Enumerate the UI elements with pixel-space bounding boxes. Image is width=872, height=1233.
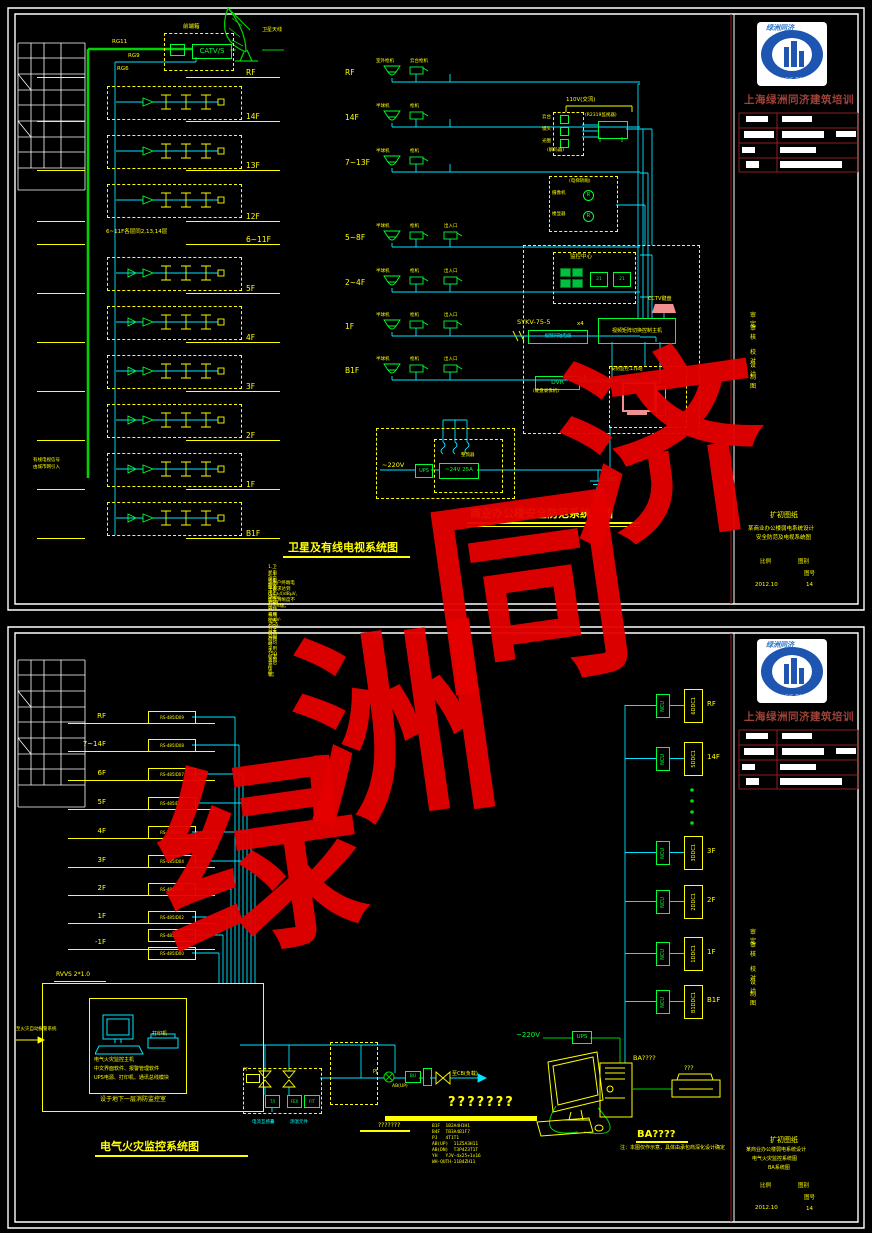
drawing-name2: BA系统图 bbox=[768, 1166, 790, 1171]
bu-box: BU bbox=[405, 1071, 421, 1083]
x4-label: x4 bbox=[577, 322, 584, 328]
lift-item1: 摄像机 bbox=[552, 192, 566, 197]
fex-box: FEX bbox=[287, 1095, 302, 1108]
control-center-label: 监控中心 bbox=[570, 255, 592, 261]
cad-canvas: CATV/S 视频矩阵切换控制主机 视频同轴电缆 DVR UPS ~24V 25… bbox=[0, 0, 872, 1233]
redaction-bar bbox=[782, 131, 824, 138]
project-line1: 某商业办公楼弱电系统设计 bbox=[748, 527, 814, 533]
redaction-bar bbox=[742, 147, 755, 153]
company-name: 上海绿洲同济建筑培训 bbox=[744, 95, 854, 106]
fas-link-label: 至火灾自动报警系统 bbox=[16, 1028, 57, 1033]
redaction-bar bbox=[744, 131, 774, 138]
ba-note: 注：本图仅作示意，具体由承包商深化设计确定 bbox=[620, 1146, 725, 1151]
meb-ground-label: MEB bbox=[606, 478, 617, 483]
catv-mid-note: 6~11F各层同2,13,14层 bbox=[106, 230, 167, 236]
decoder-port-icon bbox=[560, 139, 569, 148]
matrix-box: 视频矩阵切换控制主机 bbox=[598, 318, 676, 344]
catv-entry-note1: 有线电视信号 bbox=[33, 459, 60, 464]
ups-box-s1: UPS bbox=[415, 464, 433, 478]
ct-label: 电流互感器 bbox=[252, 1121, 275, 1126]
redaction-bar bbox=[782, 116, 812, 122]
bu-label: BU bbox=[410, 1075, 416, 1080]
coax-cable-label: SYKV-75-5 bbox=[517, 319, 551, 326]
pt-box bbox=[246, 1074, 260, 1083]
cctv-title-underline2 bbox=[467, 526, 640, 527]
monitor-21in-icon: 21 bbox=[590, 272, 608, 287]
redaction-bar bbox=[836, 131, 856, 137]
fire-diagram-title: 电气火灾监控系统图 bbox=[100, 1141, 199, 1152]
redaction-bar bbox=[780, 764, 816, 770]
cable-label-rg6: RG6 bbox=[117, 67, 129, 73]
redaction-bar bbox=[744, 748, 774, 755]
small-monitor-icon bbox=[572, 279, 583, 288]
ws-monitor-icon bbox=[622, 382, 656, 412]
fire-host-line2: 中文界面软件、报警管理软件 bbox=[94, 1067, 159, 1072]
monitor-110v-box bbox=[598, 121, 628, 139]
lift-item2: 楼显器 bbox=[552, 213, 566, 218]
redaction-bar bbox=[746, 161, 759, 168]
dvr-label: DVR bbox=[551, 380, 564, 386]
relay-box bbox=[423, 1068, 432, 1086]
fit-box: FIT bbox=[304, 1095, 320, 1108]
rvvs-cable-label: RVVS 2*1.0 bbox=[56, 972, 90, 978]
lift-cabin-label: (电梯轿厢) bbox=[569, 180, 591, 185]
redaction-bar bbox=[780, 147, 816, 153]
antenna-label: 卫星天线 bbox=[262, 28, 282, 33]
dc24-label: ~24V 25A bbox=[445, 468, 473, 474]
cctv-diagram-title: 商业办公楼安全防范系统框图 bbox=[470, 508, 613, 519]
type-label: 图别 bbox=[798, 1184, 809, 1190]
camera-r-icon: R bbox=[583, 211, 594, 222]
redaction-bar bbox=[782, 733, 812, 739]
fit-label: FIT bbox=[309, 1100, 315, 1104]
ba-title-underline bbox=[636, 1141, 688, 1143]
drawing-name: 安全防范及电视系统图 bbox=[756, 536, 811, 542]
fex-label: FEX bbox=[291, 1100, 299, 1104]
drawing-name: 电气火灾监控系统图 bbox=[752, 1157, 797, 1162]
decoder-port-icon bbox=[560, 127, 569, 136]
scale-label: 比例 bbox=[760, 560, 771, 566]
dc24-box: ~24V 25A bbox=[439, 463, 479, 479]
fire-host-line1: 电气火灾监控主机 bbox=[94, 1058, 134, 1063]
ti-box: T/I bbox=[265, 1095, 280, 1108]
dvr-box: DVR bbox=[535, 376, 580, 390]
qmarks-small-underline bbox=[360, 1130, 410, 1132]
video-cable-box: 视频同轴电缆 bbox=[528, 330, 588, 344]
redaction-bar bbox=[746, 733, 768, 739]
printer-label: 打印机 bbox=[152, 1032, 167, 1037]
fire-host-computer-icon bbox=[95, 1012, 185, 1058]
cctv-keyboard-label: CCTV键盘 bbox=[648, 297, 671, 302]
ba-diagram-title: BA???? bbox=[637, 1130, 676, 1140]
monitor-21-label: 21 bbox=[619, 277, 625, 282]
camera-r-icon: R bbox=[583, 190, 594, 201]
company-name: 上海绿洲同济建筑培训 bbox=[744, 712, 854, 723]
abup-label: AB(UP) bbox=[392, 1085, 408, 1090]
small-monitor-icon bbox=[560, 279, 571, 288]
r-label: R bbox=[587, 193, 590, 198]
ti-label: T/I bbox=[270, 1100, 275, 1104]
catv-headend-box: CATV/S bbox=[192, 44, 232, 59]
redaction-bar bbox=[746, 116, 768, 122]
dvr-sub-label: (硬盘录像机) bbox=[533, 390, 559, 395]
redaction-bar bbox=[780, 778, 842, 785]
tv-note-label: (R2319监视器) bbox=[585, 114, 617, 119]
qmarks-underline bbox=[385, 1116, 537, 1121]
ba-printer-label: ??? bbox=[684, 1066, 694, 1072]
page-value: 14 bbox=[806, 583, 813, 589]
load-label: 至CB(负载) bbox=[452, 1072, 478, 1077]
small-monitor-icon bbox=[560, 268, 571, 277]
small-monitor-icon bbox=[572, 268, 583, 277]
titleblock-lines bbox=[731, 14, 858, 1222]
ws-monitor-base bbox=[627, 410, 647, 415]
v220-label-s1: ~220V bbox=[382, 462, 404, 469]
page-value: 14 bbox=[806, 1207, 813, 1213]
junction-dashed-box bbox=[330, 1042, 378, 1105]
cctv-title-underline bbox=[467, 522, 640, 524]
decoder-item2: 镜头 bbox=[542, 128, 551, 133]
r-label: R bbox=[587, 214, 590, 219]
missing-font-label-big: ??????? bbox=[448, 1096, 515, 1109]
rvvs-underline bbox=[54, 981, 106, 982]
number-label: 图号 bbox=[804, 572, 815, 578]
ws-tower-icon bbox=[656, 386, 666, 416]
catv-box-label: CATV/S bbox=[200, 48, 225, 55]
workstation-label: 安防监控工作站 bbox=[611, 368, 643, 373]
monitor-21-label: 21 bbox=[596, 277, 602, 282]
type-label: 图别 bbox=[798, 560, 809, 566]
cable-label-rg11: RG11 bbox=[112, 40, 127, 46]
decoder-port-icon bbox=[560, 115, 569, 124]
mixer-box bbox=[170, 44, 185, 56]
ups-label-s2: UPS bbox=[577, 1035, 588, 1041]
fire-host-line3: UPS电源、打印机、通讯总线模块 bbox=[94, 1076, 169, 1081]
fire-title-underline bbox=[95, 1155, 248, 1157]
date-value: 2012.10 bbox=[755, 1206, 778, 1212]
matrix-label: 视频矩阵切换控制主机 bbox=[612, 329, 662, 334]
scale-label: 比例 bbox=[760, 1184, 771, 1190]
cable-label-rg9: RG9 bbox=[128, 54, 140, 60]
redaction-bar bbox=[780, 161, 842, 168]
fire-room-caption: 设于地下一层消防监控室 bbox=[100, 1097, 166, 1103]
headend-label: 前端箱 bbox=[183, 25, 200, 31]
monitor-21in-icon: 21 bbox=[613, 272, 631, 287]
pj-label: PJ bbox=[373, 1070, 378, 1075]
v220-label-s2: ~220V bbox=[516, 1032, 540, 1039]
ups-box-s2: UPS bbox=[572, 1031, 592, 1044]
redaction-bar bbox=[836, 748, 856, 754]
temp-label: 测温元件 bbox=[290, 1121, 308, 1126]
stage-label: 扩初图纸 bbox=[770, 512, 798, 519]
ba-host-label: BA???? bbox=[633, 1055, 656, 1062]
x8-label: x8 bbox=[581, 377, 587, 382]
decoder-item3: 光圈 bbox=[542, 140, 551, 145]
stage-label: 扩初图纸 bbox=[770, 1137, 798, 1144]
ups-label-s1: UPS bbox=[419, 469, 429, 474]
catv-entry-note2: 由城市网引入 bbox=[33, 466, 60, 471]
catv-diagram-title: 卫星及有线电视系统图 bbox=[288, 542, 398, 553]
video-cable-label: 视频同轴电缆 bbox=[545, 335, 572, 340]
number-label: 图号 bbox=[804, 1196, 815, 1202]
redaction-bar bbox=[782, 748, 824, 755]
project-line1: 某商业办公楼弱电系统设计 bbox=[746, 1148, 806, 1153]
redaction-bar bbox=[746, 778, 759, 785]
decoder-item1: 云台 bbox=[542, 116, 551, 121]
v110-label: 110V(交流) bbox=[566, 98, 596, 104]
rectifier-label: 整流器 bbox=[461, 454, 475, 459]
cctv-keyboard-icon bbox=[652, 304, 676, 313]
date-value: 2012.10 bbox=[755, 583, 778, 589]
redaction-bar bbox=[742, 764, 755, 770]
pt-label: PT bbox=[243, 1068, 248, 1072]
catv-title-underline bbox=[283, 556, 410, 558]
decoder-label: (解码器) bbox=[547, 149, 564, 154]
missing-font-label-small: ??????? bbox=[378, 1123, 400, 1129]
